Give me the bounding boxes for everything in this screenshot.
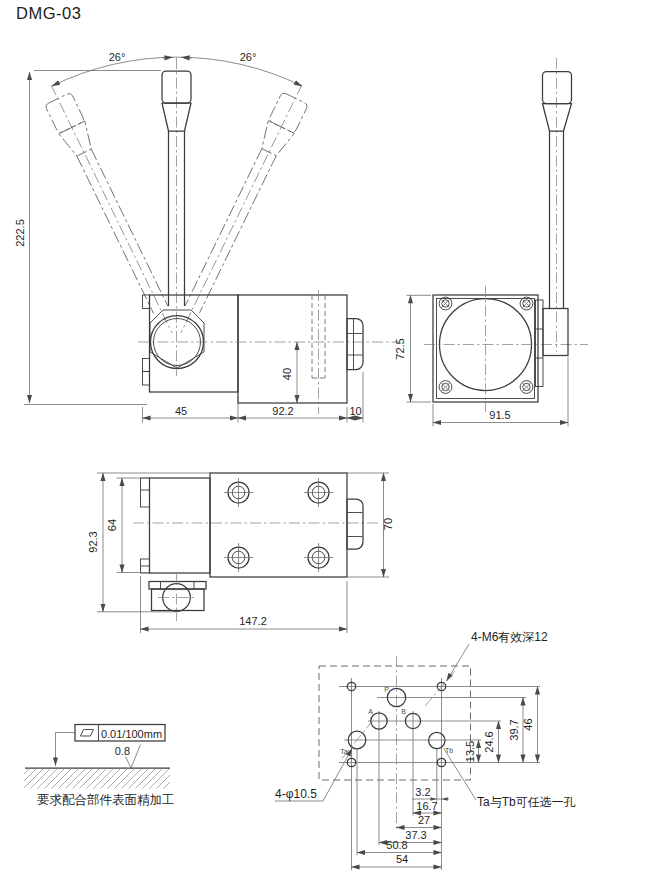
surface-finish-note: 0.01/100mm 0.8 要求配合部件表面精加工 xyxy=(24,725,175,807)
angle-right-label: 26° xyxy=(240,51,257,63)
lever-housing xyxy=(143,295,239,392)
note-m6-label: 4-M6有效深12 xyxy=(471,630,548,644)
dim-h-16-7-label: 16.7 xyxy=(416,800,437,812)
note-phi: 4-φ10.5 xyxy=(275,722,372,802)
angle-left-label: 26° xyxy=(109,51,126,63)
dim-h-3-2: 3.2 xyxy=(412,786,449,801)
page-title: DMG-03 xyxy=(16,4,81,22)
bolt-hole xyxy=(224,478,253,507)
surface-caption: 要求配合部件表面精加工 xyxy=(37,793,175,807)
front-view: 26° 26° 222.5 xyxy=(14,51,400,423)
dim-side-height-label: 72.5 xyxy=(394,338,406,359)
lever-right-position xyxy=(168,78,315,339)
dim-h-54: 54 xyxy=(352,853,442,867)
dim-v-39-7-label: 39.7 xyxy=(508,719,520,740)
engineering-drawing: DMG-03 26 xyxy=(0,0,650,881)
mounting-face-outline xyxy=(319,666,471,780)
note-m6: 4-M6有效深12 xyxy=(425,630,548,706)
corner-screw xyxy=(439,381,452,394)
dim-front-height: 222.5 xyxy=(14,71,161,405)
dim-v-39-7: 39.7 xyxy=(508,698,524,763)
dim-h-37-3-label: 37.3 xyxy=(405,829,426,841)
dim-h-54-label: 54 xyxy=(396,853,408,865)
dim-top-70-label: 70 xyxy=(382,518,394,530)
dim-side-width: 91.5 xyxy=(433,357,568,427)
bolt-hole xyxy=(304,543,333,572)
dim-v-24-6: 24.6 xyxy=(483,721,499,763)
corner-screw xyxy=(520,297,533,310)
dim-front-port: 40 xyxy=(281,342,298,403)
dim-front-height-label: 222.5 xyxy=(14,219,26,247)
dim-top-923-label: 92.3 xyxy=(87,531,99,552)
dim-top-70: 70 xyxy=(347,473,394,577)
dim-v-46: 46 xyxy=(522,687,538,763)
port-a-label: A xyxy=(368,708,373,715)
bolt-hole xyxy=(304,478,333,507)
note-tatb-label: Ta与Tb可任选一孔 xyxy=(477,795,576,809)
dim-v-24-6-label: 24.6 xyxy=(483,731,495,752)
lever-center xyxy=(162,58,191,376)
dim-h-50-8-label: 50.8 xyxy=(386,839,407,851)
port-tb-hole xyxy=(429,732,445,748)
dim-v-13-5: 13.5 xyxy=(464,740,479,763)
dim-v-46-label: 46 xyxy=(522,718,534,730)
note-phi-label: 4-φ10.5 xyxy=(275,787,317,801)
dim-h-27: 27 xyxy=(397,814,442,828)
mounting-pattern: P A B Ta Tb 4-M6有效深12 4-φ10.5 Ta与Tb可任选一孔… xyxy=(275,630,576,870)
dim-h-50-8: 50.8 xyxy=(357,839,442,853)
corner-screw xyxy=(520,381,533,394)
flatness-icon xyxy=(81,730,94,737)
bolt-hole xyxy=(224,543,253,572)
corner-screw xyxy=(439,297,452,310)
dim-housing-label: 45 xyxy=(175,405,187,417)
flatness-value: 0.01/100mm xyxy=(101,728,162,740)
dim-body-label: 92.2 xyxy=(272,405,293,417)
dim-top-64-label: 64 xyxy=(106,519,118,531)
dim-side-height: 72.5 xyxy=(394,295,431,402)
top-view: 92.3 64 70 147.2 xyxy=(87,473,394,633)
side-lever xyxy=(536,58,572,387)
valve-body xyxy=(138,290,400,414)
end-nut-top xyxy=(347,499,363,549)
dim-side-width-label: 91.5 xyxy=(489,409,510,421)
dim-top-length-label: 147.2 xyxy=(239,615,267,627)
lever-left-position xyxy=(38,79,185,340)
port-ta-label: Ta xyxy=(340,748,348,755)
dim-top-923: 92.3 xyxy=(87,473,210,612)
dim-front-port-label: 40 xyxy=(281,368,293,380)
side-view: 72.5 91.5 xyxy=(394,58,588,427)
dim-endcap-label: 10 xyxy=(349,405,361,417)
dim-front-bottom-chain: 45 92.2 10 xyxy=(143,372,364,423)
roughness-value: 0.8 xyxy=(115,745,130,757)
tolerance-leader xyxy=(56,733,76,766)
angle-dimension: 26° 26° xyxy=(52,51,302,86)
port-p-label: P xyxy=(384,686,389,693)
dim-v-13-5-label: 13.5 xyxy=(464,741,476,762)
port-b-label: B xyxy=(401,708,406,715)
hatch-area xyxy=(24,769,170,789)
dim-h-3-2-label: 3.2 xyxy=(415,786,430,798)
dim-top-64: 64 xyxy=(106,478,150,573)
dim-h-27-label: 27 xyxy=(418,814,430,826)
lever-boss-top xyxy=(149,574,206,621)
drawing-page: DMG-03 26 xyxy=(0,0,650,881)
dim-h-16-7: 16.7 xyxy=(413,800,442,814)
